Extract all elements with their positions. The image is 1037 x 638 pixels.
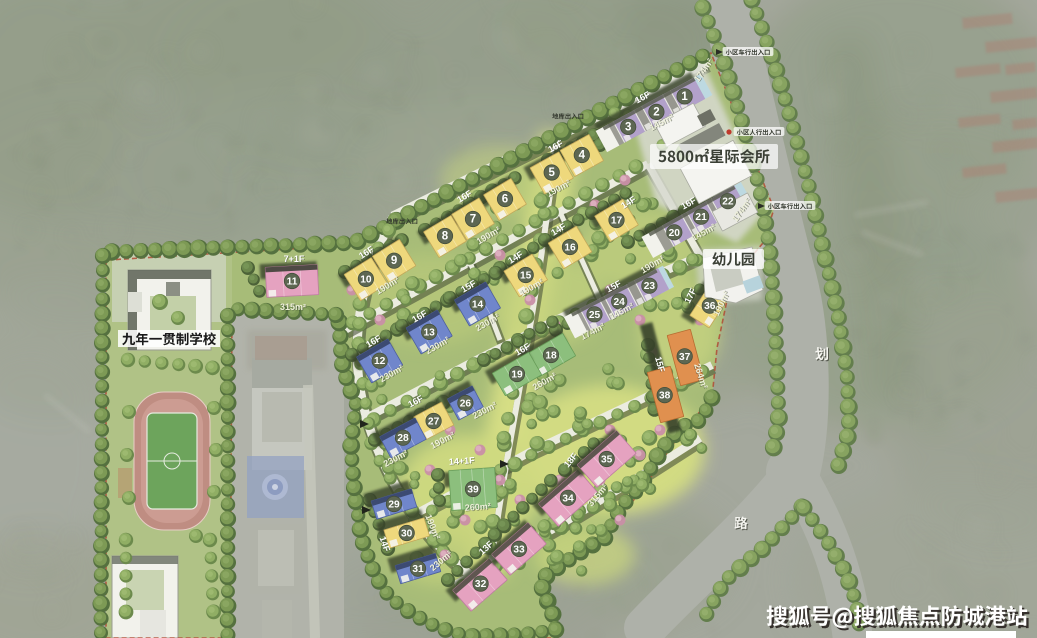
svg-text:33: 33	[513, 544, 525, 555]
svg-text:27: 27	[428, 417, 440, 428]
svg-text:260m²: 260m²	[464, 501, 491, 513]
svg-text:4: 4	[579, 150, 586, 162]
svg-text:20: 20	[669, 228, 681, 239]
svg-text:37: 37	[679, 352, 691, 363]
svg-text:7: 7	[470, 214, 476, 226]
svg-text:22: 22	[722, 197, 734, 208]
svg-text:21: 21	[695, 212, 707, 223]
svg-text:10: 10	[360, 274, 372, 285]
svg-text:11: 11	[287, 277, 298, 288]
svg-text:32: 32	[475, 579, 487, 590]
svg-text:14+1F: 14+1F	[449, 455, 476, 467]
svg-text:26: 26	[460, 399, 472, 410]
svg-text:31: 31	[412, 564, 424, 575]
svg-text:13: 13	[424, 327, 436, 338]
svg-text:17: 17	[611, 216, 623, 227]
svg-text:34: 34	[562, 493, 574, 504]
svg-text:19: 19	[511, 370, 523, 381]
svg-text:8: 8	[442, 231, 449, 243]
svg-text:30: 30	[401, 529, 413, 540]
svg-text:3: 3	[625, 121, 631, 133]
svg-text:38: 38	[659, 391, 671, 402]
svg-text:7+1F: 7+1F	[284, 254, 305, 264]
svg-text:15: 15	[520, 271, 532, 282]
svg-text:16: 16	[564, 243, 576, 254]
svg-text:2: 2	[653, 106, 659, 118]
svg-text:6: 6	[502, 194, 508, 206]
svg-text:12: 12	[374, 356, 386, 367]
svg-text:29: 29	[388, 500, 400, 511]
svg-text:28: 28	[397, 433, 409, 444]
svg-text:39: 39	[467, 485, 479, 496]
svg-text:5: 5	[548, 167, 555, 179]
svg-text:315m²: 315m²	[280, 302, 306, 312]
svg-text:9: 9	[391, 255, 397, 267]
svg-text:1: 1	[681, 91, 688, 103]
svg-text:18: 18	[545, 351, 557, 362]
svg-text:35: 35	[601, 455, 613, 466]
svg-text:23: 23	[644, 281, 656, 292]
svg-text:25: 25	[589, 310, 601, 321]
svg-text:14: 14	[472, 299, 484, 310]
